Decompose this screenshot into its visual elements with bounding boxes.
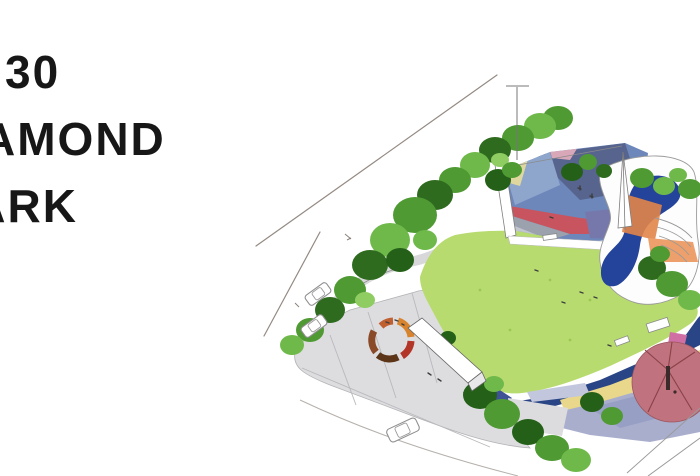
title-line-park: PARK	[0, 173, 250, 240]
pavilion-pole	[666, 366, 670, 390]
street-car	[386, 417, 421, 443]
park-site-plan-illustration	[250, 0, 700, 476]
title-line-diamond: DIAMOND	[0, 106, 250, 173]
presentation-slide: 30 DIAMOND PARK	[0, 0, 700, 476]
title-line-number: 30	[5, 39, 250, 106]
page-title: 30 DIAMOND PARK	[0, 39, 250, 240]
